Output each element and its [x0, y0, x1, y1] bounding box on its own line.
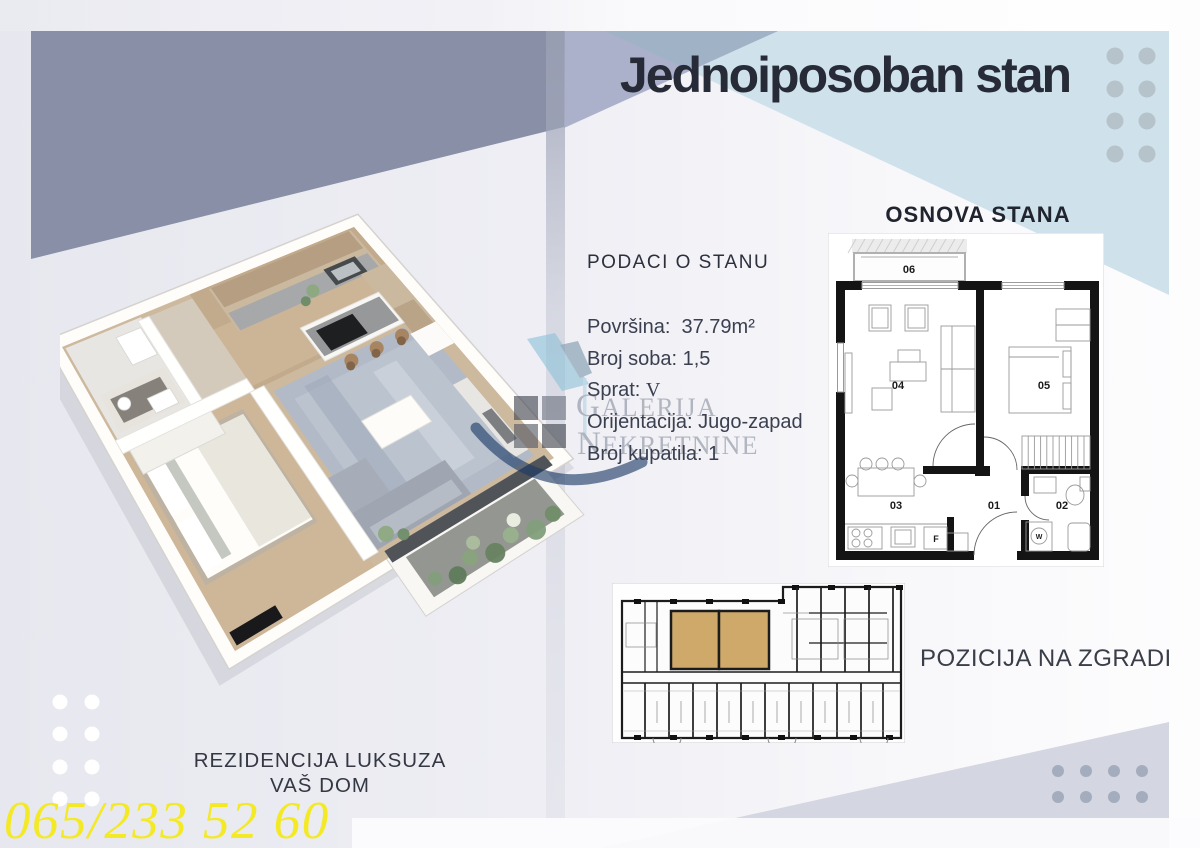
- svg-text:05: 05: [1038, 380, 1050, 392]
- svg-text:01: 01: [988, 500, 1000, 512]
- svg-text:W: W: [1036, 534, 1043, 541]
- svg-text:F: F: [933, 534, 939, 544]
- svg-text:06: 06: [903, 264, 915, 276]
- svg-text:02: 02: [1056, 500, 1068, 512]
- svg-text:04: 04: [892, 380, 905, 392]
- svg-text:03: 03: [890, 500, 902, 512]
